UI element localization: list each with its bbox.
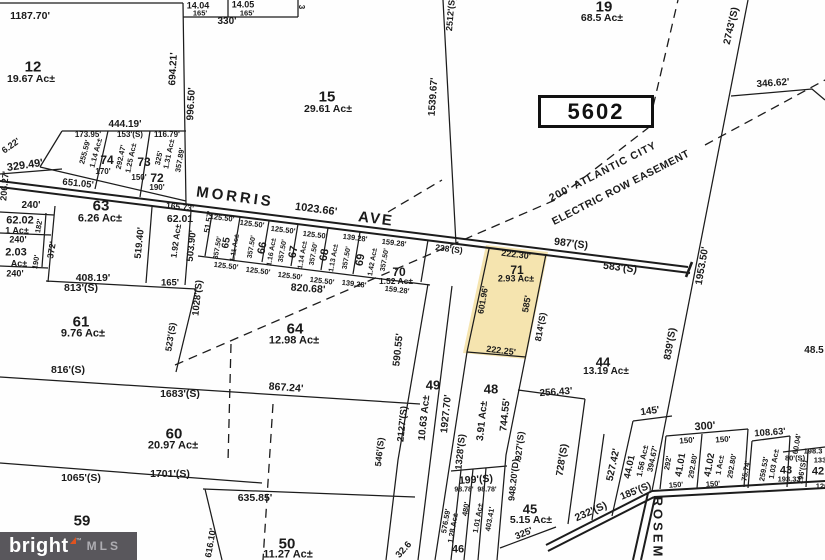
lot-69-number: 69: [355, 253, 368, 267]
dim-label: 403.41': [484, 506, 496, 532]
dim-label: 2127'(S): [396, 406, 409, 443]
dim-label: 590.55': [392, 333, 405, 367]
dim-label: 346.62': [756, 78, 790, 90]
dim-label: 1.92 Ac±: [169, 224, 182, 259]
dim-label: 444.19': [109, 120, 142, 130]
dim-label: 357.50': [380, 248, 391, 272]
dim-label: 159.28': [381, 238, 406, 248]
dim-label: 292.80': [726, 453, 738, 479]
dim-label: 1.14 Ac±: [297, 241, 309, 270]
lot-62.03-number: 2.03: [5, 248, 26, 259]
dim-label: 222.30': [501, 249, 532, 262]
dim-label: 199'(S): [459, 474, 494, 487]
block-number-box: 5602: [538, 95, 654, 128]
dim-label: 153'(S): [117, 131, 143, 139]
dim-label: 182': [34, 218, 44, 233]
dim-label: 1065'(S): [61, 473, 101, 484]
rosemont-street-name: ROSEM: [652, 497, 665, 560]
dim-label: 29.61 Ac±: [304, 104, 352, 115]
dim-label: 238'(S): [435, 243, 463, 255]
dim-label: 820.68': [290, 283, 325, 296]
dim-label: 867.24': [268, 382, 303, 395]
lot-48-number: 48: [484, 383, 498, 396]
dim-label: 2.93 Ac±: [498, 275, 534, 284]
dim-label: 329.49': [6, 158, 43, 174]
lot-73-number: 73: [137, 156, 150, 168]
brightmls-logo-text: bright: [9, 535, 69, 558]
dim-label: 1683'(S): [160, 389, 200, 400]
dim-label: 198.3: [804, 447, 823, 455]
dim-label: 48.5: [804, 346, 823, 356]
dim-label: 159.28': [384, 285, 409, 295]
lot-62.01-number: 62.01: [167, 214, 193, 225]
dim-label: 523'(S): [164, 322, 177, 352]
dim-label: 1539.67': [428, 77, 441, 116]
dim-label: 292': [663, 455, 673, 470]
dim-label: 813'(S): [64, 283, 98, 294]
dim-label: 3.91 Ac±: [476, 401, 490, 442]
dim-label: 1 Ac±: [715, 455, 726, 476]
dim-label: 635.85': [238, 493, 273, 504]
dim-label: 75.74': [741, 460, 752, 482]
morris-ave-name: MORRIS: [195, 184, 274, 209]
dim-label: 546'(S): [374, 437, 386, 467]
dim-label: 240': [21, 201, 40, 211]
dim-label: 98.78': [454, 487, 473, 494]
lot-74-number: 74: [100, 154, 113, 166]
dim-label: 839'(S): [663, 327, 678, 361]
dim-label: 927'(S): [514, 431, 526, 461]
dim-label: 256.43': [539, 387, 573, 399]
dim-label: 372': [46, 241, 58, 259]
dim-label: 996.50': [186, 87, 198, 120]
dim-label: 987'(S): [553, 237, 588, 252]
plat-map: 1187.70'1219.67 Ac±14.04165'14.05165'330…: [0, 0, 825, 560]
dim-label: 20.97 Ac±: [148, 441, 198, 452]
dim-label: Ac±: [11, 260, 27, 269]
dim-label: 300': [694, 421, 716, 433]
dim-label: 2512'(S): [445, 0, 457, 31]
dim-label: 240': [9, 236, 26, 245]
dim-label: 125.50': [213, 261, 238, 271]
dim-label: 1953.50': [695, 246, 712, 286]
trademark-symbol: ™: [76, 538, 82, 544]
dim-label: 694.21': [168, 52, 180, 85]
dim-label: 583'(S): [602, 261, 637, 276]
dim-label: 68.5 Ac±: [581, 13, 623, 24]
dim-label: 170': [95, 168, 110, 176]
dim-label: 616.10': [204, 528, 218, 559]
dim-label: 5.15 Ac±: [510, 515, 552, 526]
dim-label: 11.27 Ac±: [263, 550, 313, 560]
dim-label: 1.42 Ac±: [367, 248, 379, 277]
dim-label: 125.50': [270, 225, 295, 235]
dim-label: 519.40': [134, 227, 147, 259]
dim-label: 1.52 Ac±: [379, 277, 413, 286]
dim-label: 145': [640, 406, 660, 419]
dim-label: 357.50': [342, 246, 353, 270]
dim-label: 150': [131, 174, 146, 182]
dim-label: 1328'(S): [454, 434, 467, 471]
dim-label: 814'(S): [534, 312, 548, 342]
dim-label: 139.28': [341, 279, 366, 289]
dim-label: 165': [161, 278, 179, 288]
dim-label: 1028'(S): [191, 280, 204, 317]
dim-label: 816'(S): [51, 365, 85, 376]
dim-label: 150': [679, 436, 695, 445]
dim-label: 325': [514, 526, 534, 542]
dim-label: 139.28': [342, 233, 367, 243]
dim-label: 480': [461, 501, 471, 516]
dim-label: 125.50': [239, 219, 264, 229]
dim-label: 13.19 Ac±: [583, 367, 629, 377]
lot-42-number: 42: [812, 467, 824, 478]
dim-label: 32.6: [394, 540, 413, 560]
dim-label: 165': [193, 9, 207, 17]
dim-label: 585': [521, 295, 533, 313]
dim-label: 6.26 Ac±: [78, 214, 122, 225]
dim-label: 222.25': [486, 345, 517, 358]
dim-label: 3: [297, 5, 305, 9]
dim-label: 728'(S): [556, 443, 571, 477]
dim-label: 240': [6, 270, 23, 279]
lot-59-number: 59: [74, 514, 91, 529]
dim-label: 120: [816, 482, 825, 490]
label-layer: 1187.70'1219.67 Ac±14.04165'14.05165'330…: [0, 0, 825, 560]
dim-label: 185'(S): [619, 481, 653, 502]
dim-label: 1187.70': [10, 11, 50, 22]
lot-46-number: 46: [452, 545, 464, 556]
dim-label: 527.42': [606, 448, 623, 482]
dim-label: 60.04': [792, 433, 803, 455]
dim-label: 193.33': [778, 475, 803, 483]
dim-label: 125.50': [302, 230, 327, 240]
dim-label: 601.96': [476, 285, 489, 314]
brightmls-logo-suffix: MLS: [87, 539, 121, 553]
dim-label: 357.89': [174, 147, 186, 173]
dim-label: 6.22': [0, 137, 21, 156]
dim-label: 125.50': [277, 271, 302, 281]
lot-63-number: 63: [93, 199, 110, 214]
dim-label: 1927.70': [440, 394, 454, 433]
dim-label: 10.63 Ac±: [418, 395, 433, 441]
dim-label: 125.50': [245, 266, 270, 276]
dim-label: 19.67 Ac±: [7, 74, 55, 85]
dim-label: 165.73': [166, 201, 195, 212]
dim-label: 948.20'(D): [507, 459, 520, 502]
lot-49-number: 49: [426, 379, 440, 392]
dim-label: 108.63': [754, 427, 786, 439]
dim-label: 165': [240, 9, 254, 17]
dim-label: 150': [706, 480, 721, 488]
dim-label: 2743'(S): [723, 6, 741, 45]
morris-ave-dimension: 1023.66': [294, 202, 337, 218]
dim-label: 1701'(S): [150, 469, 190, 480]
dim-label: 232'(S): [573, 500, 608, 523]
dim-label: 206.27': [0, 171, 11, 201]
block-number: 5602: [568, 99, 625, 125]
dim-label: 330': [217, 17, 236, 27]
brightmls-watermark: bright ™ MLS: [0, 532, 137, 560]
dim-label: 133: [814, 456, 825, 464]
dim-label: 190': [149, 184, 164, 192]
dim-label: 150': [715, 435, 731, 444]
dim-label: 503.90': [186, 230, 199, 262]
morris-ave-suffix: AVE: [357, 209, 394, 229]
dim-label: 292.80': [687, 453, 699, 479]
dim-label: 651.05': [62, 178, 94, 191]
dim-label: 744.55': [499, 398, 512, 432]
dim-label: 12.98 Ac±: [269, 336, 319, 347]
dim-label: 9.76 Ac±: [61, 329, 105, 340]
dim-label: 150': [669, 481, 684, 489]
dim-label: 190': [31, 254, 41, 269]
dim-label: 98.78': [477, 487, 496, 494]
dim-label: 1.13 Ac±: [328, 244, 340, 273]
